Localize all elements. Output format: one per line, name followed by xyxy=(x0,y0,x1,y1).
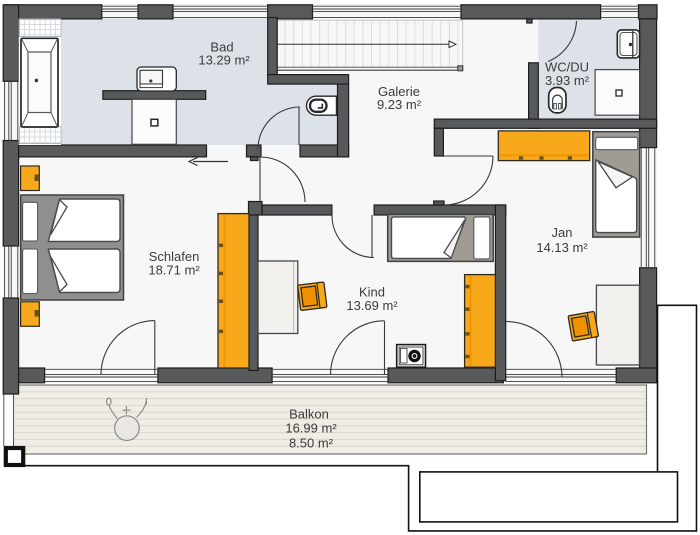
svg-text:9.23 m²: 9.23 m² xyxy=(377,97,422,112)
svg-text:13.29 m²: 13.29 m² xyxy=(198,53,250,68)
svg-text:3.93 m²: 3.93 m² xyxy=(545,73,590,88)
svg-text:8.50 m²: 8.50 m² xyxy=(289,436,334,451)
svg-text:16.99 m²: 16.99 m² xyxy=(285,421,337,436)
svg-text:Jan: Jan xyxy=(552,225,573,240)
svg-text:13.69 m²: 13.69 m² xyxy=(346,298,398,313)
svg-text:18.71 m²: 18.71 m² xyxy=(148,263,200,278)
svg-text:14.13 m²: 14.13 m² xyxy=(536,240,588,255)
svg-text:Balkon: Balkon xyxy=(289,407,329,422)
